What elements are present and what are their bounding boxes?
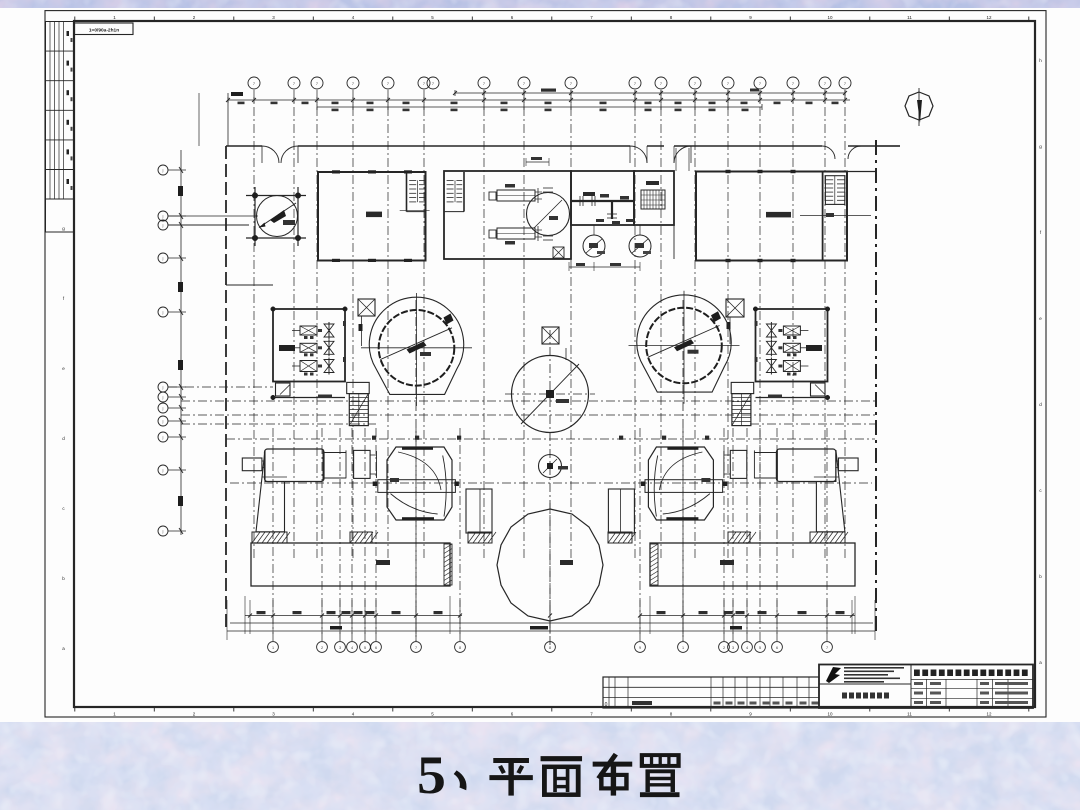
svg-text:j: j [162, 386, 164, 390]
svg-text:j: j [162, 396, 164, 400]
svg-text:j: j [162, 169, 164, 173]
svg-text:12: 12 [986, 15, 992, 20]
svg-text:7: 7 [634, 82, 636, 86]
svg-text:j: j [162, 311, 164, 315]
svg-text:4: 4 [746, 646, 748, 650]
svg-text:j: j [162, 257, 164, 261]
svg-text:7: 7 [570, 82, 572, 86]
svg-text:7: 7 [415, 646, 417, 650]
svg-text:11: 11 [907, 712, 912, 717]
svg-text:7: 7 [352, 82, 354, 86]
svg-text:5: 5 [417, 746, 446, 806]
svg-text:7: 7 [844, 82, 846, 86]
svg-text:9: 9 [639, 646, 641, 650]
svg-text:1: 1 [272, 646, 274, 650]
svg-text:11: 11 [907, 15, 912, 20]
svg-text:7: 7 [727, 82, 729, 86]
svg-text:3: 3 [732, 646, 734, 650]
svg-text:7: 7 [523, 82, 525, 86]
svg-text:7: 7 [694, 82, 696, 86]
svg-text:7: 7 [387, 82, 389, 86]
svg-text:12: 12 [986, 712, 992, 717]
svg-text:j: j [162, 530, 164, 534]
svg-text:j: j [162, 436, 164, 440]
svg-text:3: 3 [339, 646, 341, 650]
svg-text:8: 8 [459, 646, 461, 650]
svg-text:j: j [162, 215, 164, 219]
svg-text:j: j [162, 420, 164, 424]
svg-text:10: 10 [827, 712, 833, 717]
svg-text:6: 6 [375, 646, 377, 650]
svg-text:7: 7 [483, 82, 485, 86]
svg-text:j: j [162, 224, 164, 228]
svg-text:4: 4 [351, 646, 353, 650]
svg-text:7: 7 [293, 82, 295, 86]
svg-text:8: 8 [549, 646, 551, 650]
svg-text:2: 2 [723, 646, 725, 650]
svg-text:1=0/90a-2h1n: 1=0/90a-2h1n [89, 28, 119, 34]
svg-text:j: j [162, 469, 164, 473]
svg-text:7: 7 [826, 646, 828, 650]
svg-text:1: 1 [682, 646, 684, 650]
svg-text:7: 7 [423, 82, 425, 86]
svg-text:7: 7 [253, 82, 255, 86]
svg-text:2: 2 [321, 646, 323, 650]
svg-text:10: 10 [827, 15, 833, 20]
svg-text:7: 7 [759, 82, 761, 86]
svg-text:6: 6 [776, 646, 778, 650]
svg-text:7: 7 [432, 82, 434, 86]
svg-text:7: 7 [660, 82, 662, 86]
svg-text:7: 7 [316, 82, 318, 86]
svg-text:5: 5 [759, 646, 761, 650]
svg-text:5: 5 [364, 646, 366, 650]
svg-text:0: 0 [605, 702, 608, 708]
svg-text:j: j [162, 407, 164, 411]
svg-text:7: 7 [792, 82, 794, 86]
svg-text:7: 7 [824, 82, 826, 86]
